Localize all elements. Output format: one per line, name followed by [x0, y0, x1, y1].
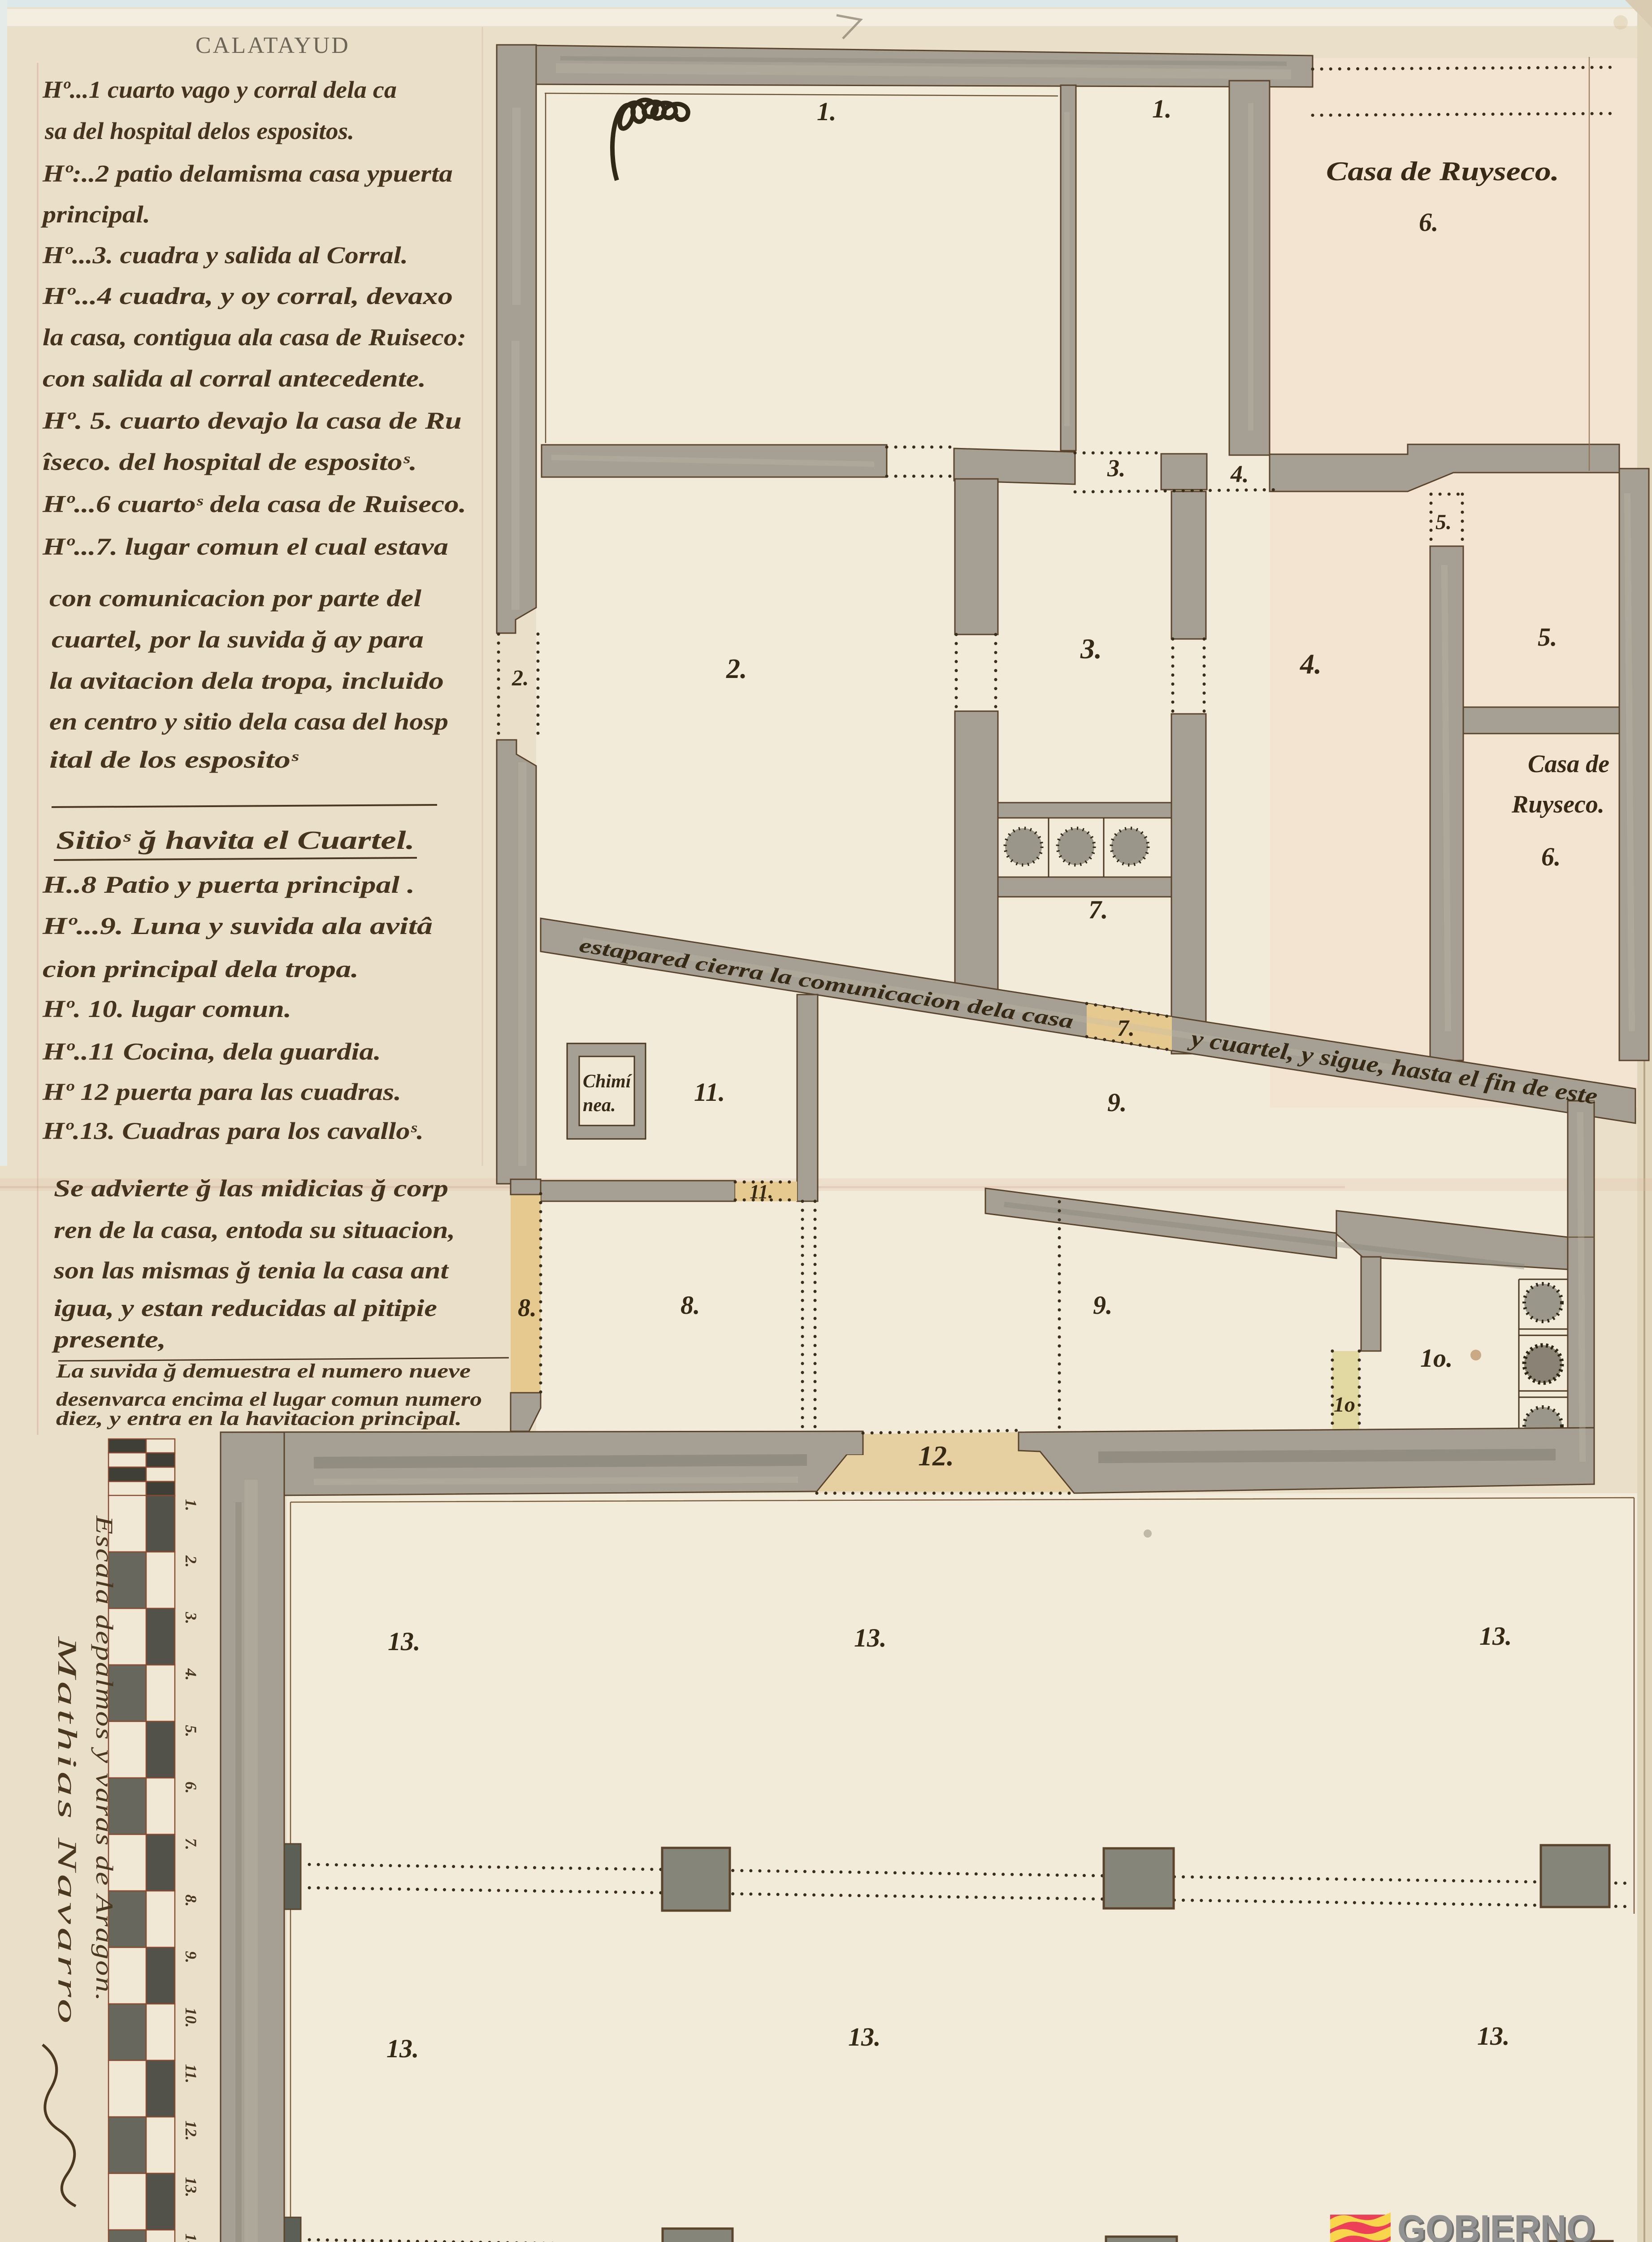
svg-text:13.: 13.: [1479, 1621, 1512, 1651]
svg-text:la casa, contigua ala casa de: la casa, contigua ala casa de Ruiseco:: [43, 324, 466, 351]
svg-text:12.: 12.: [918, 1440, 954, 1472]
svg-text:13.: 13.: [1477, 2021, 1510, 2051]
svg-text:Hº:..2 patio delamisma casa y: Hº:..2 patio delamisma casa ypuerta: [42, 160, 453, 187]
svg-text:cuartel, por la suvida ğ ay p: cuartel, por la suvida ğ ay para: [52, 626, 424, 653]
svg-text:6.: 6.: [1419, 208, 1439, 237]
svg-text:Mathias Navarro: Mathias Navarro: [52, 1636, 82, 2027]
svg-text:Hº..11 Cocina, dela guardia.: Hº..11 Cocina, dela guardia.: [42, 1038, 381, 1065]
svg-text:9.: 9.: [1107, 1088, 1127, 1117]
svg-text:7.: 7.: [182, 1838, 200, 1850]
svg-text:13.: 13.: [854, 1623, 887, 1652]
svg-text:9.: 9.: [182, 1951, 200, 1963]
svg-text:en centro y sitio dela casa de: en centro y sitio dela casa del hosp: [49, 708, 448, 735]
svg-text:5.: 5.: [1435, 510, 1452, 534]
svg-text:3.: 3.: [182, 1612, 200, 1624]
svg-text:2.: 2.: [182, 1555, 200, 1568]
svg-text:4.: 4.: [1230, 461, 1249, 487]
svg-text:Hº...1 cuarto vago y corral de: Hº...1 cuarto vago y corral dela ca: [42, 76, 397, 103]
svg-text:12.: 12.: [182, 2120, 200, 2141]
svg-text:presente,: presente,: [52, 1326, 166, 1353]
svg-text:Hº...6 cuartoˢ dela casa de R: Hº...6 cuartoˢ dela casa de Ruiseco.: [42, 491, 466, 517]
svg-text:2.: 2.: [512, 665, 529, 690]
svg-text:4.: 4.: [182, 1668, 200, 1681]
svg-text:8.: 8.: [518, 1294, 537, 1322]
svg-text:con salida al corral anteceden: con salida al corral antecedente.: [43, 365, 426, 392]
svg-text:ital de los espositoˢ: ital de los espositoˢ: [49, 746, 299, 773]
svg-text:Hº...7. lugar comun el cual es: Hº...7. lugar comun el cual estava: [42, 533, 448, 560]
svg-text:6.: 6.: [1541, 842, 1561, 871]
svg-text:Hº.13. Cuadras para los caval: Hº.13. Cuadras para los cavalloˢ.: [42, 1117, 424, 1144]
svg-text:Escala depalmos y varas de Ara: Escala depalmos y varas de Aragon.: [91, 1515, 118, 2002]
svg-text:H..8 Patio y puerta principal: H..8 Patio y puerta principal .: [42, 871, 415, 898]
svg-text:7.: 7.: [1088, 895, 1108, 924]
svg-text:9.: 9.: [1093, 1290, 1113, 1320]
svg-text:con comunicacion por parte del: con comunicacion por parte del: [49, 585, 421, 612]
svg-text:3.: 3.: [1080, 633, 1102, 665]
svg-text:Casa de: Casa de: [1528, 750, 1609, 778]
svg-text:1o: 1o: [1334, 1393, 1355, 1416]
svg-text:son las mismas ğ tenia la cas: son las mismas ğ tenia la casa ant: [53, 1257, 449, 1284]
svg-text:GOBIERNO: GOBIERNO: [1397, 2207, 1595, 2242]
svg-text:cion principal dela tropa.: cion principal dela tropa.: [43, 956, 359, 982]
svg-text:igua, y estan reducidas al pit: igua, y estan reducidas al pitipie: [54, 1295, 437, 1321]
svg-text:îseco. del hospital de esposit: îseco. del hospital de espositoˢ.: [43, 448, 417, 475]
svg-text:Sitioˢ ğ havita el Cuartel.: Sitioˢ ğ havita el Cuartel.: [56, 826, 415, 855]
svg-text:50: 50: [35, 2238, 83, 2242]
svg-text:Hº. 10. lugar comun.: Hº. 10. lugar comun.: [42, 995, 291, 1022]
svg-text:diez, y entra en la havitacion: diez, y entra en la havitacion principal…: [56, 1408, 462, 1429]
svg-text:Hº...9. Luna y suvida ala avit: Hº...9. Luna y suvida ala avitâ: [42, 912, 433, 939]
svg-text:La suvida ğ demuestra el nume: La suvida ğ demuestra el numero nueve: [56, 1360, 471, 1382]
svg-text:ren de la casa, entoda su situ: ren de la casa, entoda su situacion,: [54, 1217, 455, 1243]
svg-text:Casa de Ruyseco.: Casa de Ruyseco.: [1326, 156, 1559, 186]
svg-text:Hº. 5. cuarto devajo la casa d: Hº. 5. cuarto devajo la casa de Ru: [42, 407, 462, 434]
svg-text:Chimí: Chimí: [583, 1071, 633, 1092]
svg-text:5.: 5.: [182, 1725, 200, 1737]
svg-text:3.: 3.: [1107, 455, 1126, 482]
svg-text:13.: 13.: [182, 2177, 200, 2197]
svg-text:nea.: nea.: [583, 1095, 616, 1116]
svg-text:2.: 2.: [726, 654, 747, 684]
svg-text:CALATAYUD: CALATAYUD: [195, 33, 350, 58]
svg-text:1.: 1.: [1152, 94, 1172, 123]
svg-text:Ruyseco.: Ruyseco.: [1511, 791, 1604, 818]
svg-text:13.: 13.: [848, 2022, 881, 2051]
svg-text:desenvarca encima el lugar com: desenvarca encima el lugar comun numero: [56, 1388, 482, 1410]
svg-text:la avitacion dela tropa, inclu: la avitacion dela tropa, incluido: [49, 667, 444, 694]
svg-text:11.: 11.: [182, 2064, 200, 2083]
svg-text:Se advierte ğ las midicias ğ: Se advierte ğ las midicias ğ corp: [54, 1175, 448, 1202]
svg-text:4.: 4.: [1300, 648, 1322, 680]
svg-text:Hº...4 cuadra, y oy corral, de: Hº...4 cuadra, y oy corral, devaxo: [42, 282, 453, 309]
svg-text:1.: 1.: [817, 97, 837, 126]
svg-text:11.: 11.: [750, 1181, 773, 1203]
svg-text:8.: 8.: [182, 1894, 200, 1907]
svg-text:principal.: principal.: [41, 201, 150, 228]
svg-text:13.: 13.: [386, 2034, 419, 2063]
svg-text:Hº 12 puerta para las cuadras.: Hº 12 puerta para las cuadras.: [42, 1078, 401, 1105]
svg-text:10.: 10.: [182, 2007, 200, 2028]
svg-text:7.: 7.: [1117, 1016, 1135, 1041]
svg-text:11.: 11.: [694, 1078, 725, 1107]
svg-text:1o.: 1o.: [1420, 1343, 1453, 1373]
svg-text:sa del hospital delos esposito: sa del hospital delos espositos.: [44, 117, 354, 144]
svg-text:5.: 5.: [1538, 622, 1557, 652]
svg-text:8.: 8.: [681, 1290, 700, 1320]
svg-text:14.: 14.: [182, 2233, 200, 2242]
svg-text:13.: 13.: [388, 1627, 421, 1656]
svg-text:Hº...3. cuadra y salida al Cor: Hº...3. cuadra y salida al Corral.: [42, 242, 408, 269]
svg-text:1.: 1.: [182, 1499, 200, 1511]
svg-text:6.: 6.: [182, 1781, 200, 1794]
